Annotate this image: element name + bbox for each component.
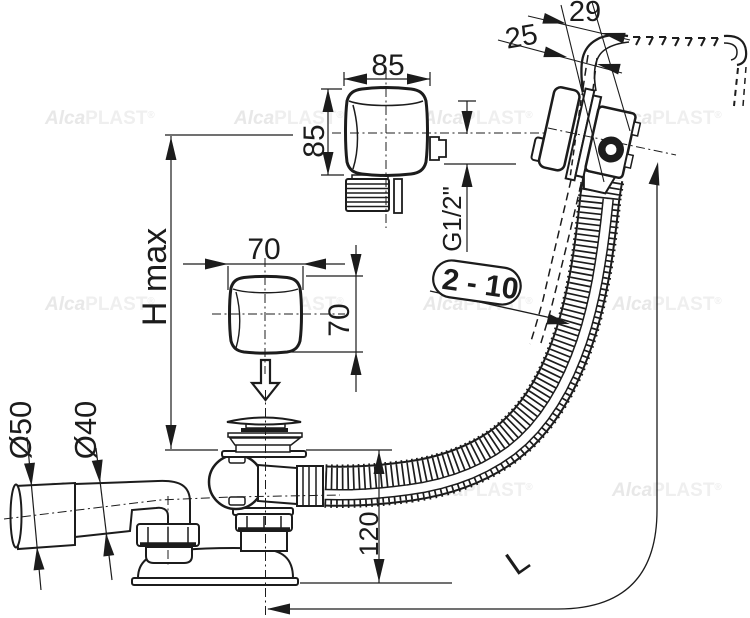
svg-text:Ø40: Ø40: [68, 401, 103, 460]
svg-text:85: 85: [298, 124, 331, 157]
svg-text:Ø50: Ø50: [3, 401, 38, 460]
svg-text:70: 70: [247, 233, 280, 266]
svg-text:H max: H max: [136, 228, 174, 326]
svg-text:G1/2": G1/2": [437, 186, 467, 252]
svg-text:29: 29: [569, 0, 601, 28]
svg-text:85: 85: [371, 49, 404, 82]
svg-text:70: 70: [323, 303, 356, 336]
svg-text:120: 120: [354, 511, 384, 556]
svg-text:25: 25: [503, 18, 540, 55]
